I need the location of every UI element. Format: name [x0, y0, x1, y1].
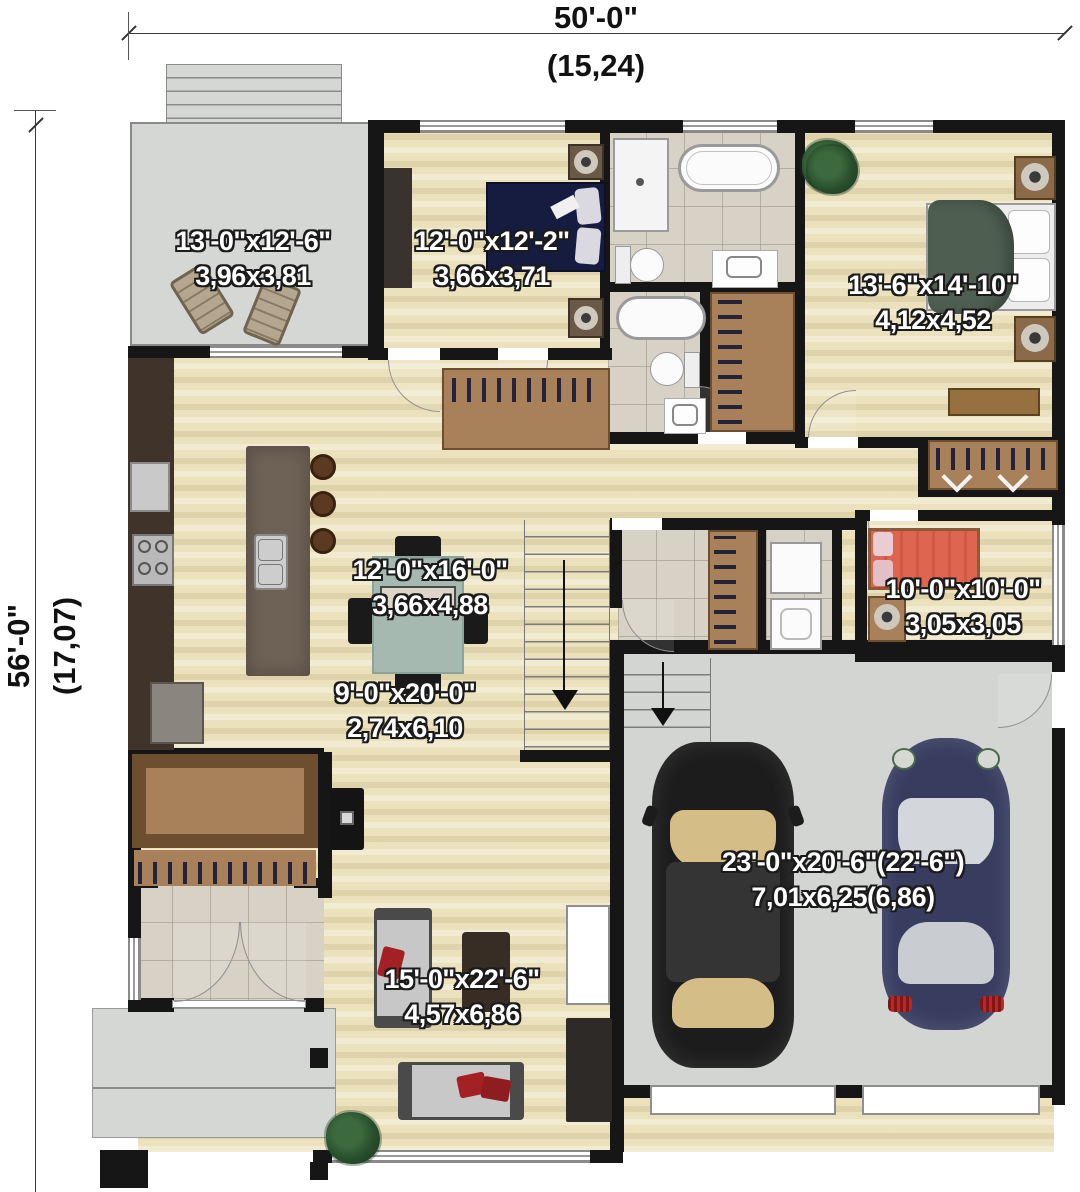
- window-entry: [128, 938, 141, 1000]
- bedroom2-speaker-bottom-cone: [574, 306, 598, 330]
- master-nightstand-top-decor: [1021, 163, 1049, 191]
- wall-garage-left: [610, 652, 624, 1152]
- label-dining-metric: 3,66x4,88: [250, 588, 610, 623]
- label-kitchen: 9'-0"x20'-0" 2,74x6,10: [225, 676, 585, 746]
- wall-mudroom-left: [610, 518, 622, 608]
- label-master-imperial: 13'-6"x14'-10": [753, 268, 1080, 303]
- window-master: [855, 120, 933, 133]
- hallway-plant: [808, 146, 858, 194]
- wall-entry-bottom-left: [128, 998, 174, 1012]
- fireplace-insert: [340, 811, 354, 825]
- toilet2-tank: [684, 352, 700, 388]
- entry-bench: [132, 754, 318, 848]
- door-gap-garage-side: [1052, 672, 1065, 728]
- window-bathroom1: [683, 120, 777, 133]
- left-dimension-imperial: 56'-0": [1, 561, 37, 731]
- door-gap-master: [808, 437, 858, 448]
- left-dimension-metric: (17,07): [47, 561, 83, 731]
- window-patio-interior: [210, 346, 342, 358]
- top-dimension-line: [128, 33, 1065, 34]
- label-dining-imperial: 12'-0"x16'-0": [250, 553, 610, 588]
- living-plant: [326, 1112, 380, 1164]
- tub2: [616, 296, 706, 340]
- label-bedroom2-imperial: 12'-0"x12'-2": [312, 224, 672, 259]
- door-gap-mudroom: [612, 518, 662, 530]
- loveseat-pillow-2: [480, 1076, 511, 1103]
- label-bedroom2: 12'-0"x12'-2" 3,66x3,71: [312, 224, 672, 294]
- label-master-metric: 4,12x4,52: [753, 303, 1080, 338]
- compact-taillight-left: [888, 996, 912, 1012]
- vanity2-sink: [672, 404, 698, 426]
- label-bedroom2-metric: 3,66x3,71: [312, 259, 672, 294]
- porch-post-lower: [310, 1162, 328, 1180]
- label-garage-metric: 7,01x6,25(6,86): [663, 880, 1023, 915]
- cooktop-burner-3: [138, 562, 151, 575]
- left-dimension-tick-top: [28, 117, 44, 133]
- floor-plan: 50'-0" (15,24) 56'-0" (17,07): [0, 0, 1080, 1192]
- cooktop-burner-4: [155, 562, 168, 575]
- left-dimension-line: [35, 110, 36, 1192]
- tub-inner: [686, 151, 772, 185]
- label-dining: 12'-0"x16'-0" 3,66x4,88: [250, 553, 610, 623]
- sedan-rear-window: [672, 978, 774, 1028]
- label-bedroom3-imperial: 10'-0"x10'-0": [783, 572, 1080, 607]
- bar-stool-1: [310, 454, 336, 480]
- left-extension-line-top: [14, 110, 56, 111]
- porch-post-upper: [310, 1048, 328, 1068]
- label-kitchen-metric: 2,74x6,10: [225, 711, 585, 746]
- wall-below-stairs: [520, 750, 624, 762]
- bedroom2-closet-clothes: [452, 378, 600, 402]
- garage-steps-arrowhead: [651, 708, 675, 726]
- compact-headlight-right: [976, 748, 1000, 770]
- label-bedroom3: 10'-0"x10'-0" 3,05x3,05: [783, 572, 1080, 642]
- door-gap-bedroom2b: [498, 348, 548, 360]
- toilet2-bowl: [650, 352, 684, 386]
- bar-stool-3: [310, 528, 336, 554]
- label-bedroom3-metric: 3,05x3,05: [783, 607, 1080, 642]
- label-living: 15'-0"x22'-6" 4,57x6,86: [282, 962, 642, 1032]
- mudroom-closet-clothes: [714, 536, 736, 644]
- label-garage-imperial: 23'-0"x20'-6"(22'-6"): [663, 845, 1023, 880]
- kitchen-sink-cabinet: [150, 682, 204, 744]
- top-dimension-imperial: 50'-0": [396, 0, 796, 36]
- label-kitchen-imperial: 9'-0"x20'-0": [225, 676, 585, 711]
- garage-door-left: [650, 1085, 836, 1115]
- shower-drain: [636, 178, 644, 186]
- label-garage: 23'-0"x20'-6"(22'-6") 7,01x6,25(6,86): [663, 845, 1023, 915]
- garage-door-right: [862, 1085, 1040, 1115]
- compact-headlight-left: [892, 748, 916, 770]
- door-gap-bedroom2: [388, 348, 440, 360]
- label-master-bedroom: 13'-6"x14'-10" 4,12x4,52: [753, 268, 1080, 338]
- hall-closet-clothes: [718, 300, 742, 424]
- garage-entry-steps: [622, 658, 711, 744]
- window-bedroom2: [420, 120, 565, 133]
- bar-stool-2: [310, 491, 336, 517]
- porch-post-corner: [100, 1150, 148, 1188]
- garage-steps-arrow: [662, 662, 664, 710]
- compact-taillight-right: [980, 996, 1004, 1012]
- entry-coat-closet-clothes: [138, 862, 312, 884]
- bedroom3-pillow-top: [873, 532, 893, 556]
- label-living-imperial: 15'-0"x22'-6": [282, 962, 642, 997]
- master-pillow-top: [1008, 210, 1050, 254]
- label-living-metric: 4,57x6,86: [282, 997, 642, 1032]
- bedroom2-speaker-top-cone: [574, 150, 598, 174]
- tv-cabinet: [566, 1018, 612, 1122]
- door-gap-bedroom3: [870, 510, 918, 521]
- top-extension-line-left: [128, 12, 129, 60]
- cooktop-burner-2: [155, 540, 168, 553]
- cooktop-burner-1: [138, 540, 151, 553]
- patio-steps: [166, 64, 342, 124]
- compact-rear-window: [898, 922, 994, 984]
- top-dimension-metric: (15,24): [396, 48, 796, 84]
- master-dresser: [948, 388, 1040, 416]
- wall-bedroom3-bottom: [855, 650, 1065, 662]
- fridge: [130, 462, 170, 512]
